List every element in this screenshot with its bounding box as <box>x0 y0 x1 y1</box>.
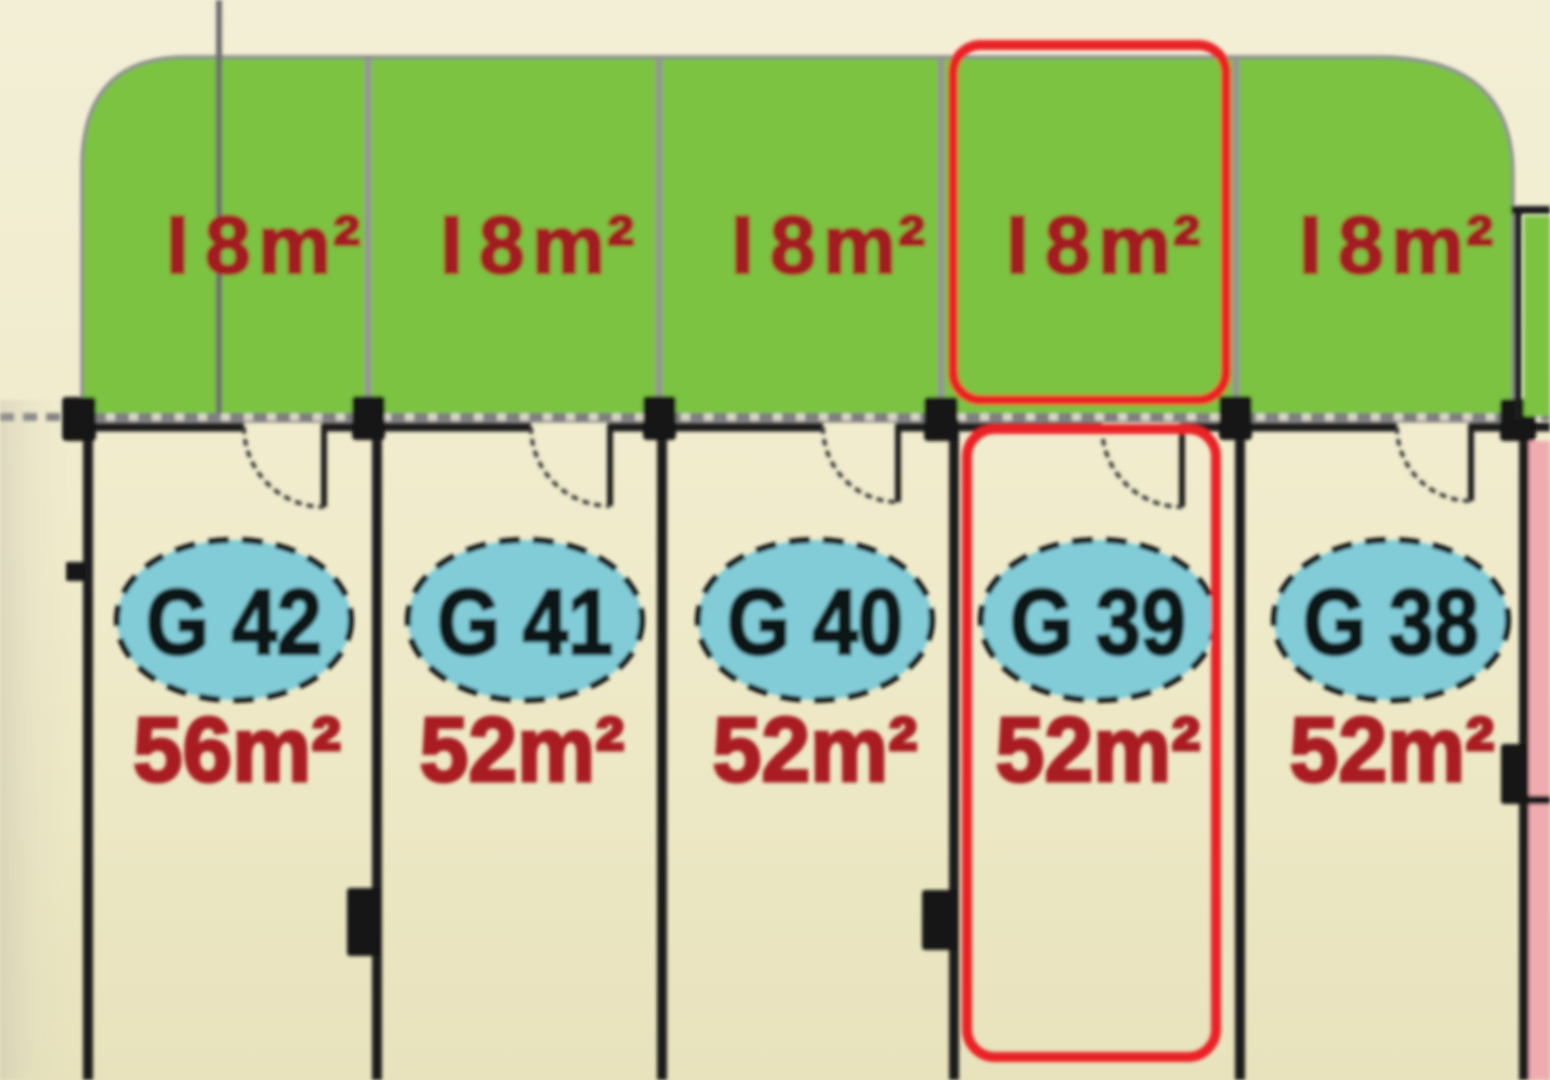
svg-text:G 42: G 42 <box>146 570 322 674</box>
svg-text:52m²: 52m² <box>1290 699 1495 801</box>
svg-text:56m²: 56m² <box>133 699 341 801</box>
svg-text:52m²: 52m² <box>996 699 1201 801</box>
svg-text:G 38: G 38 <box>1303 570 1479 674</box>
svg-text:G 41: G 41 <box>437 570 613 674</box>
svg-text:G 40: G 40 <box>727 570 903 674</box>
svg-text:52m²: 52m² <box>713 699 918 801</box>
svg-text:52m²: 52m² <box>420 699 625 801</box>
svg-text:G 39: G 39 <box>1010 570 1186 674</box>
